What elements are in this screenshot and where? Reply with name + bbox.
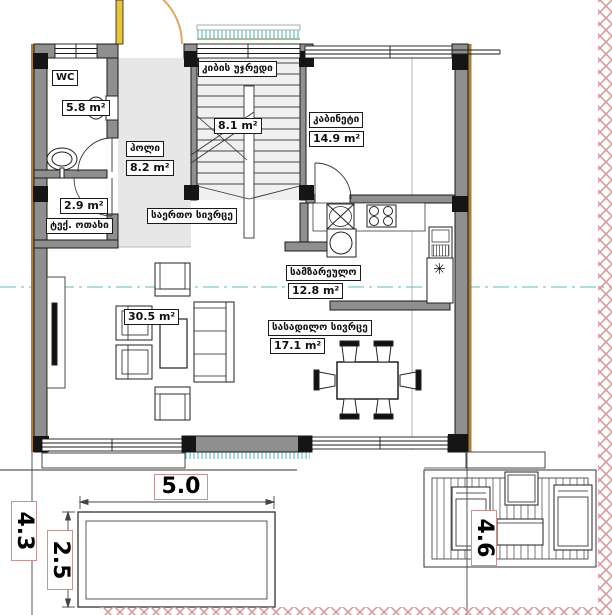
dining-chair xyxy=(340,399,359,419)
tv-console xyxy=(47,277,65,388)
stove-fixture xyxy=(367,205,396,227)
planter xyxy=(424,452,545,468)
floor-plan-drawing xyxy=(0,0,612,615)
staircase-area-label: 8.1 m² xyxy=(214,118,262,134)
lounge-chair xyxy=(554,485,592,550)
wc-room-label: WC xyxy=(52,70,78,86)
window-bottom-right xyxy=(312,437,448,449)
entrance-door-arc xyxy=(120,0,182,44)
floor-plan-canvas: WC 5.8 m² ჰოლი 8.2 m² 2.9 m² ტექ. ოთახი … xyxy=(0,0,612,615)
kitchen-area-label: 12.8 m² xyxy=(288,283,343,299)
dining-chair xyxy=(400,370,421,390)
coffee-table xyxy=(160,319,187,368)
zigzag-border-right xyxy=(598,0,612,615)
staircase-room-label: კიბის უჯრედი xyxy=(198,61,277,77)
window-bottom-left xyxy=(42,439,182,451)
armchair-bottom xyxy=(155,387,190,420)
dining-area-label: 17.1 m² xyxy=(270,338,325,354)
dining-chair xyxy=(374,341,393,362)
tech-room-area-label: 2.9 m² xyxy=(60,198,108,214)
dining-furniture xyxy=(314,341,421,419)
window-top-wc xyxy=(55,44,97,58)
dim-pool-depth: 2.5 xyxy=(47,530,73,590)
deck-side-table xyxy=(505,472,538,505)
dining-table xyxy=(337,362,398,399)
deck xyxy=(424,470,596,567)
dining-chair xyxy=(314,370,335,390)
study-area-label: 14.9 m² xyxy=(309,131,364,147)
entrance-door xyxy=(116,0,182,44)
wc-area-label: 5.8 m² xyxy=(62,100,110,116)
kitchen-room-label: სამზარეულო xyxy=(286,265,361,281)
hall-room-label: ჰოლი xyxy=(126,141,164,157)
window-top-stairs xyxy=(197,44,300,58)
deck-table xyxy=(497,519,543,545)
dim-pool-width: 5.0 xyxy=(154,474,208,500)
freezer-symbol: ✳ xyxy=(433,260,446,278)
dim-site-depth: 4.3 xyxy=(11,501,37,561)
wc-door-arc xyxy=(78,138,112,172)
dining-chair xyxy=(340,341,359,362)
study-room-label: კაბინეტი xyxy=(309,112,363,128)
fridge-fixture xyxy=(429,227,452,259)
armchair-left-2 xyxy=(116,345,152,379)
dining-room-label: სასადილო სივრცე xyxy=(268,320,372,336)
dim-deck-width: 4.6 xyxy=(471,510,497,566)
hall-area-label: 8.2 m² xyxy=(126,160,174,176)
under-counter-appliance xyxy=(327,229,356,257)
entrance-door-leaf xyxy=(116,0,123,44)
dining-chair xyxy=(374,399,393,419)
stair-stringer xyxy=(244,86,254,238)
zigzag-border-bottom xyxy=(100,607,598,615)
kitchen-sink-fixture xyxy=(327,204,354,229)
tech-room-label: ტექ. ოთახი xyxy=(46,218,113,234)
study-door-arc xyxy=(315,163,351,199)
common-space-area-label: 30.5 m² xyxy=(124,309,179,325)
pool xyxy=(78,512,275,607)
common-space-label: საერთო სივრცე xyxy=(147,208,237,224)
sofa xyxy=(194,302,234,382)
armchair-top xyxy=(155,263,190,296)
